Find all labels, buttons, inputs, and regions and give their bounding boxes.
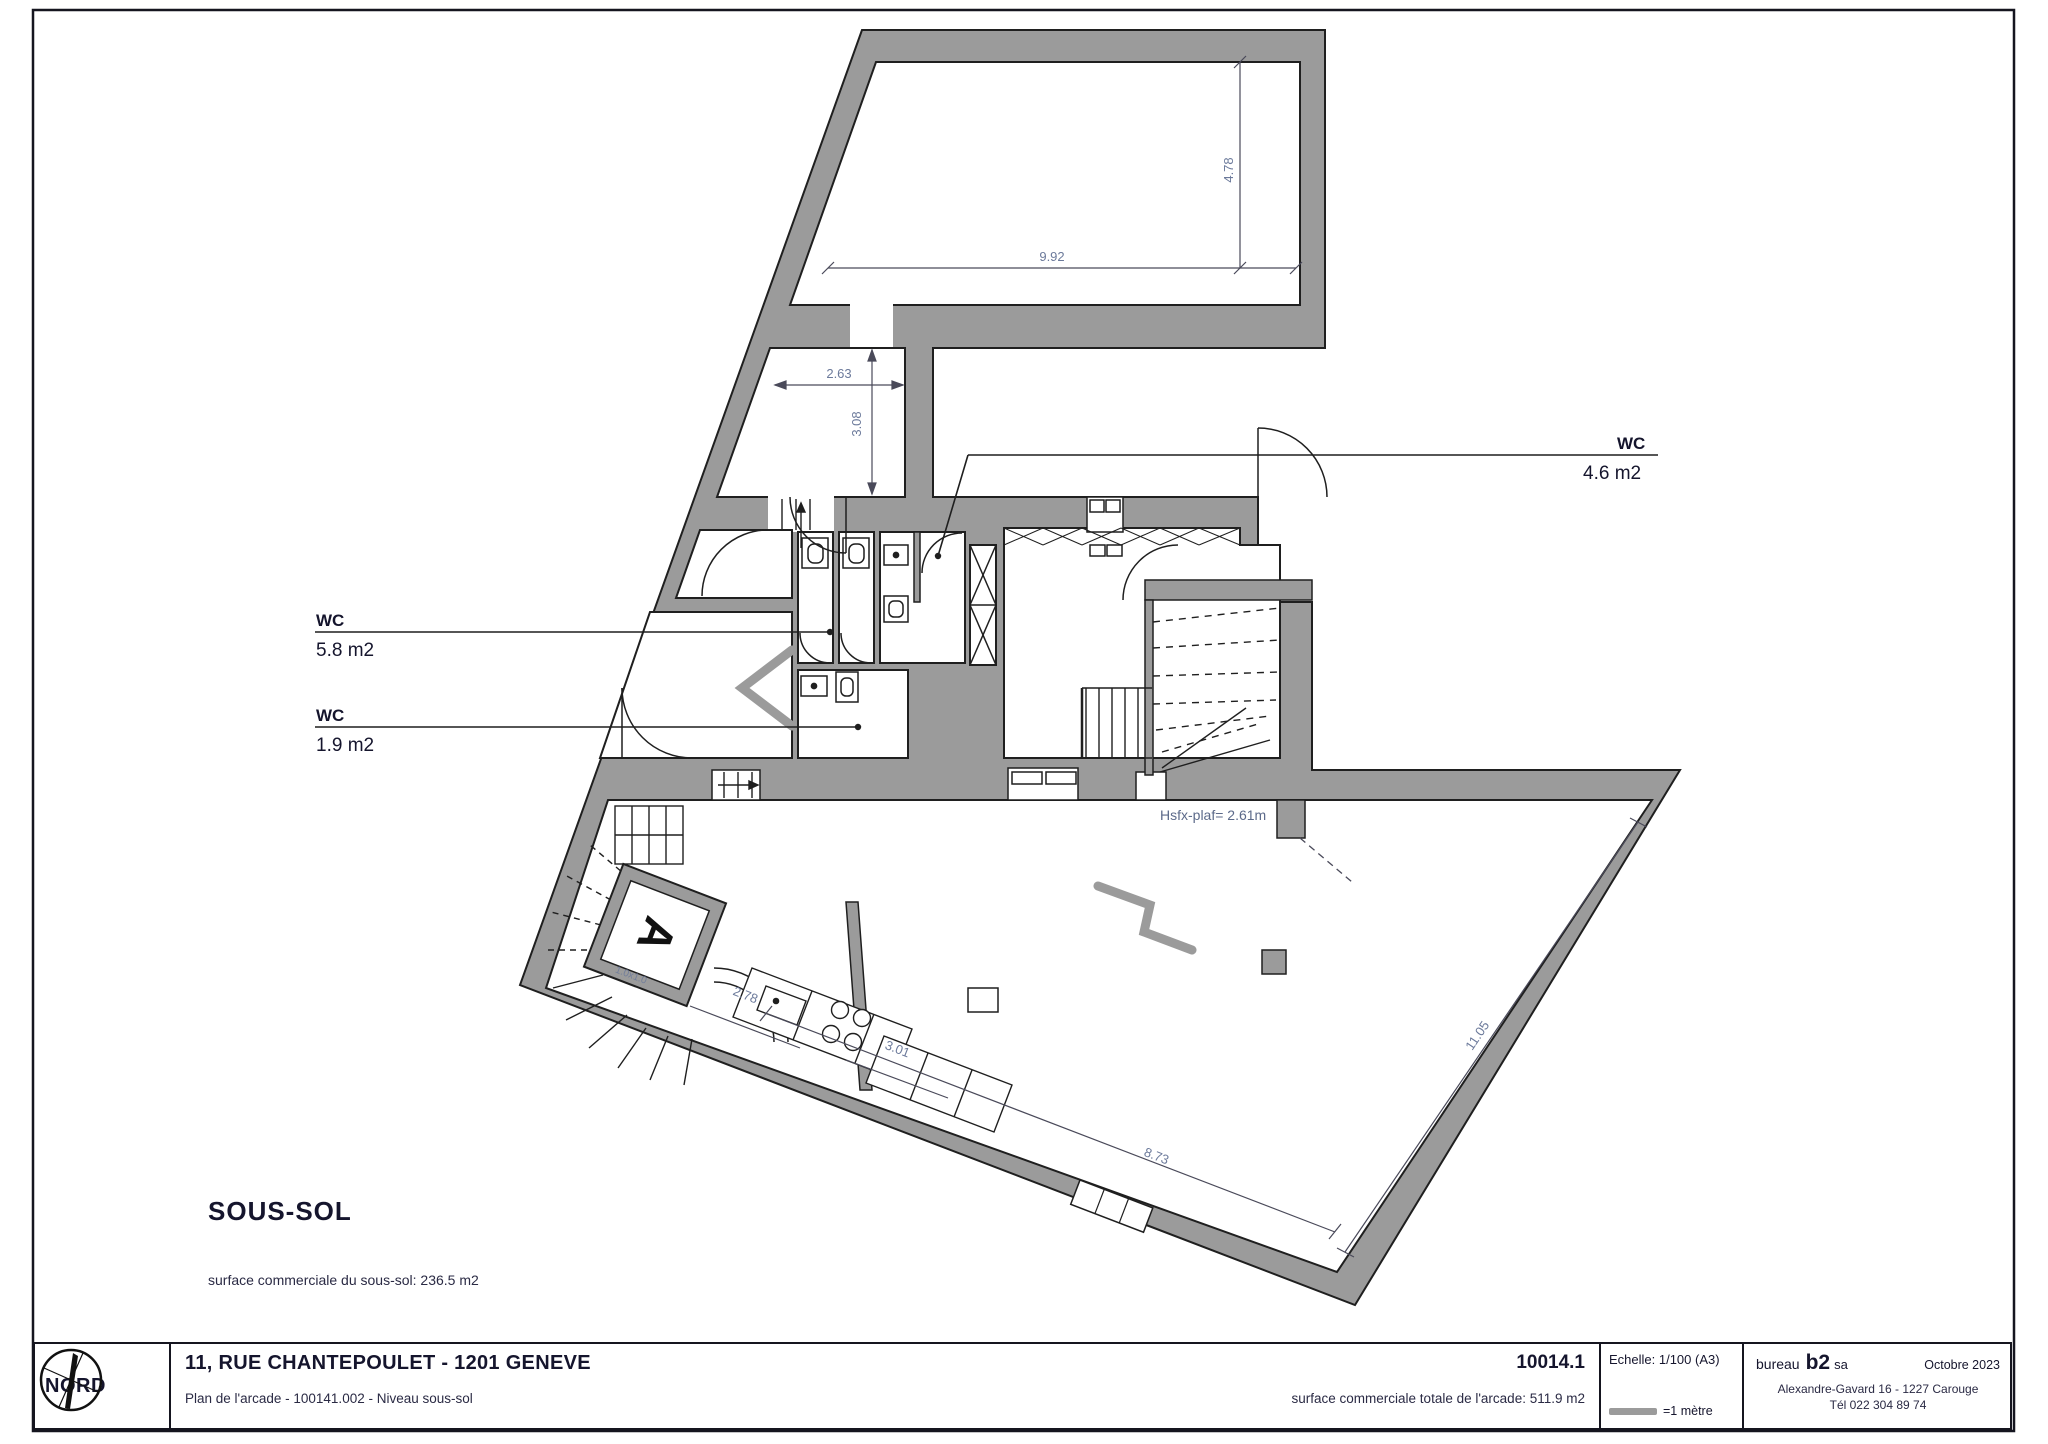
ceiling-notch xyxy=(1277,800,1305,838)
scale-bar xyxy=(1609,1408,1657,1415)
svg-text:2.63: 2.63 xyxy=(826,366,851,381)
wc-mid-title: WC xyxy=(316,611,344,630)
svg-text:9.92: 9.92 xyxy=(1039,249,1064,264)
level-title: SOUS-SOL xyxy=(208,1196,352,1227)
firm-phone: Tél 022 304 89 74 xyxy=(1756,1398,2000,1412)
wc-top-area: 4.6 m2 xyxy=(1583,463,1641,484)
title-block: NORD 11, RUE CHANTEPOULET - 1201 GENEVE … xyxy=(33,1342,2012,1430)
svg-text:3.08: 3.08 xyxy=(849,411,864,436)
wc-mid-area: 5.8 m2 xyxy=(316,640,374,661)
north-cell: NORD xyxy=(35,1344,169,1428)
scale-bar-label: =1 mètre xyxy=(1663,1404,1713,1418)
scale-cell: Echelle: 1/100 (A3) =1 mètre xyxy=(1599,1344,1742,1428)
room-right xyxy=(1004,528,1280,758)
column xyxy=(1262,950,1286,974)
room-left-2 xyxy=(600,612,792,758)
floor-plan: A 1.0x1.0 xyxy=(0,0,2048,1444)
firm-suffix: sa xyxy=(1834,1357,1848,1372)
drawing-date: Octobre 2023 xyxy=(1924,1358,2000,1372)
svg-text:4.78: 4.78 xyxy=(1221,157,1236,182)
wc-low-title: WC xyxy=(316,706,344,725)
firm-prefix: bureau xyxy=(1756,1356,1800,1372)
scale-label: Echelle: 1/100 (A3) xyxy=(1609,1352,1734,1367)
firm-cell: bureau b2 sa Octobre 2023 Alexandre-Gava… xyxy=(1742,1344,2010,1428)
wc-lobby xyxy=(880,532,965,663)
drawing-number: 10014.1 xyxy=(1292,1352,1585,1374)
wc-top-title: WC xyxy=(1617,434,1645,453)
total-area-note: surface commerciale totale de l'arcade: … xyxy=(1292,1391,1585,1406)
wc-low-area: 1.9 m2 xyxy=(316,735,374,756)
ceiling-note: Hsfx-plaf= 2.61m xyxy=(1160,807,1266,823)
drawing-info: Plan de l'arcade - 100141.002 - Niveau s… xyxy=(185,1391,591,1406)
firm-name: b2 xyxy=(1806,1351,1831,1375)
level-area-note: surface commerciale du sous-sol: 236.5 m… xyxy=(208,1272,479,1288)
building-walls xyxy=(520,30,1680,1305)
drawing-sheet: A 1.0x1.0 xyxy=(0,0,2048,1444)
project-address: 11, RUE CHANTEPOULET - 1201 GENEVE xyxy=(185,1352,591,1375)
compass-icon xyxy=(35,1344,107,1416)
firm-address: Alexandre-Gavard 16 - 1227 Carouge xyxy=(1756,1382,2000,1396)
project-cell: 11, RUE CHANTEPOULET - 1201 GENEVE Plan … xyxy=(169,1344,1599,1428)
